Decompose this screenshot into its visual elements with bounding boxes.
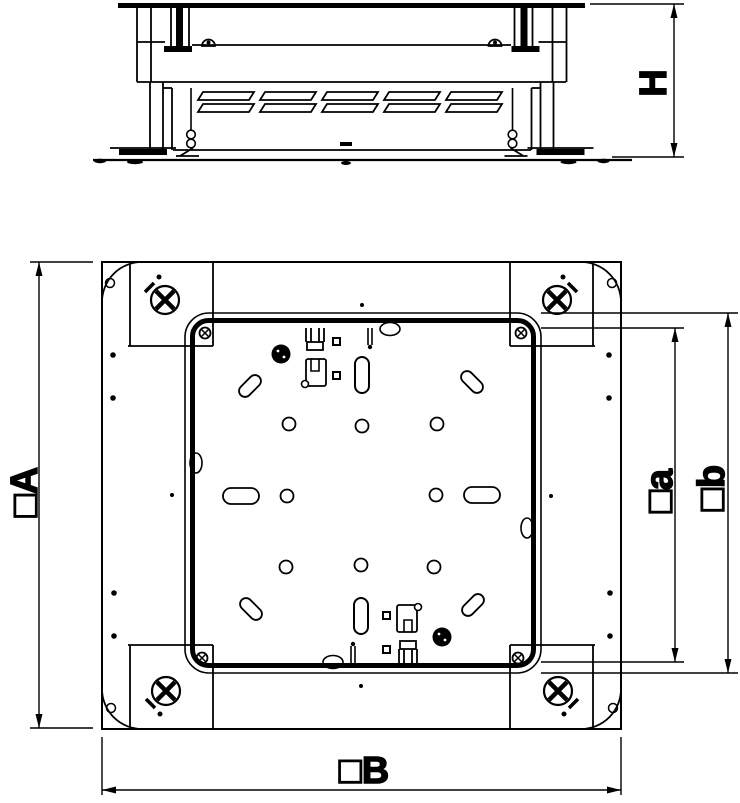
label-outer-square: □A xyxy=(4,467,46,517)
label-inner-a: □a xyxy=(639,468,681,513)
hanger-bar xyxy=(176,8,183,46)
foot-pad xyxy=(119,149,167,155)
latch-dot xyxy=(207,41,211,45)
hanger-foot xyxy=(164,46,192,52)
rail-dot-small xyxy=(170,493,174,497)
label-height: H xyxy=(633,69,675,96)
rail-dot xyxy=(110,352,116,358)
rivet-highlight xyxy=(277,350,280,353)
din-clip-hole xyxy=(302,381,309,388)
rivet xyxy=(272,345,291,364)
rail-dot-small xyxy=(360,303,364,307)
center-knockout-mark xyxy=(340,142,352,146)
label-bottom-width: □B xyxy=(339,750,389,792)
rail-dot xyxy=(110,395,116,401)
rivet-highlight xyxy=(283,356,286,359)
sheet-background xyxy=(0,0,740,803)
rail-dot xyxy=(606,395,612,401)
corner-tick-dot xyxy=(561,275,566,280)
corner-tick-dot xyxy=(157,275,162,280)
drawing-sheet: H xyxy=(0,0,740,803)
label-inner-b: □b xyxy=(691,465,733,511)
technical-drawing: H xyxy=(0,0,740,803)
ground-mark xyxy=(341,161,351,165)
rail-dot xyxy=(606,352,612,358)
pin-dot xyxy=(368,345,372,349)
cover-plate xyxy=(118,3,585,8)
